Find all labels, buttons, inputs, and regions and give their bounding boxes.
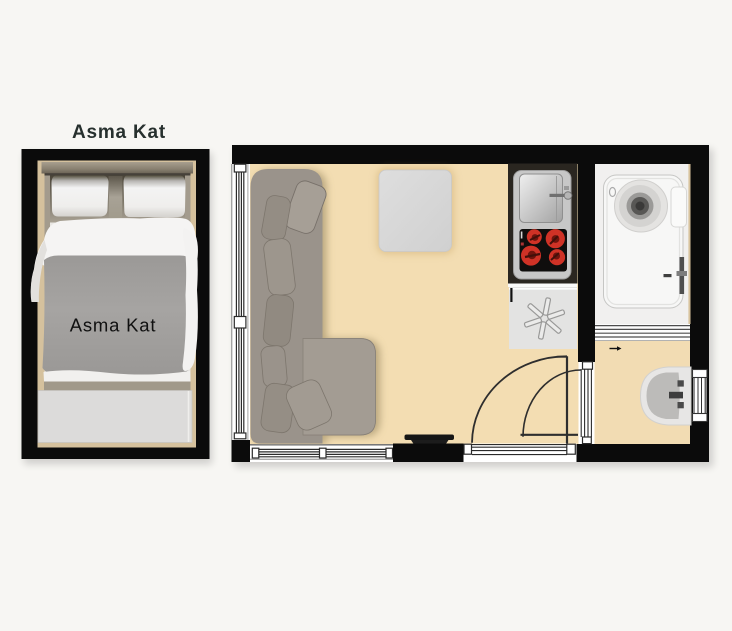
svg-text:Asma Kat: Asma Kat — [72, 122, 166, 143]
svg-text:Asma Kat: Asma Kat — [70, 315, 157, 336]
